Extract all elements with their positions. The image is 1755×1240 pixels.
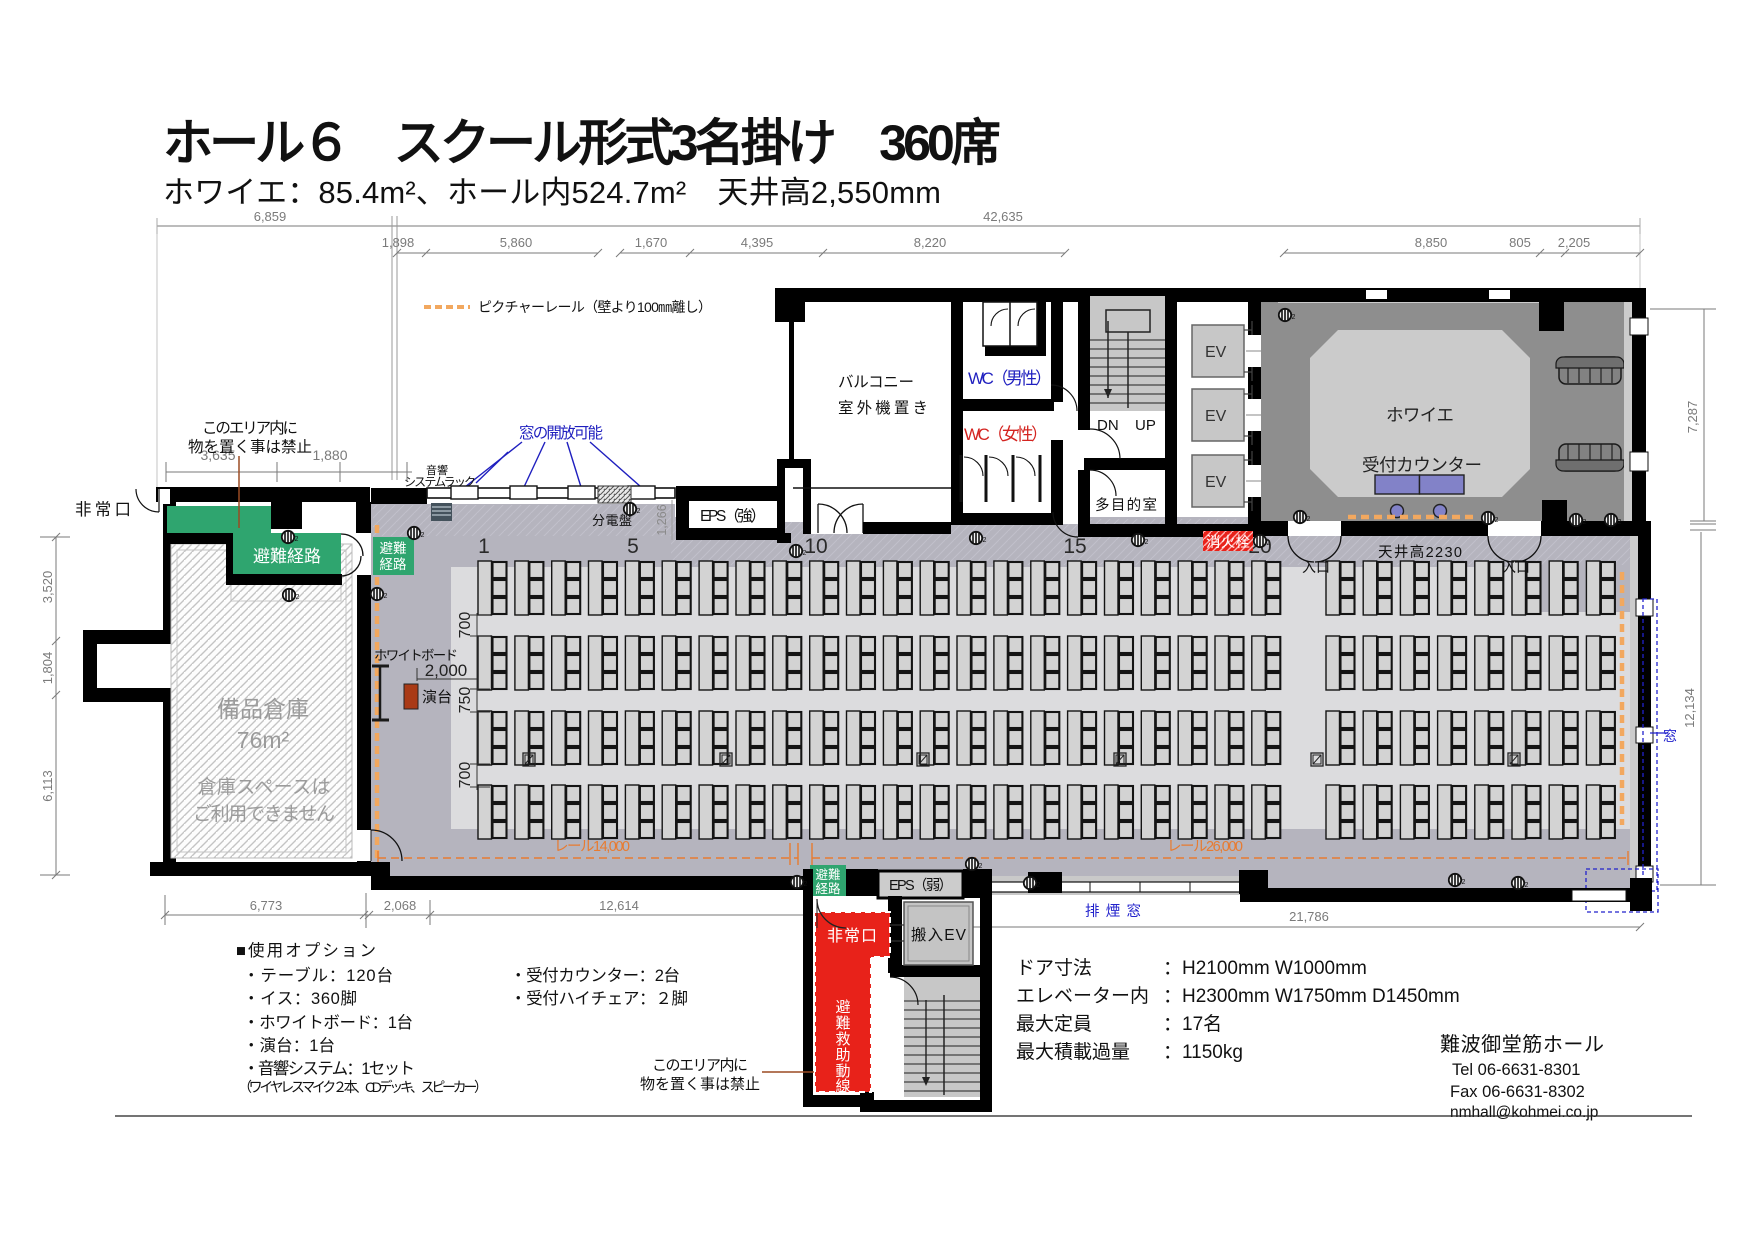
svg-text:このエリア内に: このエリア内に bbox=[652, 1057, 748, 1074]
svg-text:Tel 06-6631-8301: Tel 06-6631-8301 bbox=[1452, 1061, 1580, 1079]
svg-text:2,000: 2,000 bbox=[425, 661, 468, 680]
svg-text:7,287: 7,287 bbox=[1685, 401, 1700, 434]
svg-text:12,134: 12,134 bbox=[1682, 688, 1697, 728]
svg-text:助: 助 bbox=[835, 1047, 850, 1064]
svg-text:4,395: 4,395 bbox=[741, 235, 774, 250]
svg-text:避難: 避難 bbox=[816, 867, 841, 882]
svg-text:経路: 経路 bbox=[816, 881, 841, 896]
svg-text:ホール６ スクール形式3名掛け 360席: ホール６ スクール形式3名掛け 360席 bbox=[163, 115, 1001, 171]
svg-text:非常口: 非常口 bbox=[75, 500, 131, 519]
svg-text:備品倉庫: 備品倉庫 bbox=[217, 696, 309, 722]
svg-text:2,205: 2,205 bbox=[1558, 235, 1591, 250]
svg-text:76m²: 76m² bbox=[237, 727, 290, 753]
svg-text:入口: 入口 bbox=[1502, 559, 1530, 575]
svg-text:レール26,000: レール26,000 bbox=[1167, 839, 1243, 855]
svg-text:このエリア内に: このエリア内に bbox=[202, 419, 298, 437]
svg-text:・ホワイトボード：1台: ・ホワイトボード：1台 bbox=[243, 1013, 413, 1032]
svg-text:nmhall@kohmei.co.jp: nmhall@kohmei.co.jp bbox=[1450, 1104, 1598, 1121]
svg-text:WC（男性）: WC（男性） bbox=[968, 369, 1052, 388]
svg-text:805: 805 bbox=[1509, 235, 1531, 250]
svg-text:：17名: ：17名 bbox=[1163, 1013, 1222, 1035]
svg-text:ドア寸法: ドア寸法 bbox=[1016, 957, 1092, 979]
svg-text:・受付ハイチェア：２脚: ・受付ハイチェア：２脚 bbox=[510, 989, 688, 1008]
svg-text:入口: 入口 bbox=[1302, 559, 1330, 575]
svg-text:EPS（強）: EPS（強） bbox=[700, 507, 766, 525]
svg-text:線: 線 bbox=[835, 1078, 850, 1095]
svg-text:搬入EV: 搬入EV bbox=[911, 926, 967, 944]
svg-text:UP: UP bbox=[1135, 417, 1156, 434]
svg-text:EV: EV bbox=[1205, 408, 1227, 425]
svg-text:EV: EV bbox=[1205, 344, 1227, 361]
svg-text:EV: EV bbox=[1205, 474, 1227, 491]
svg-text:Fax 06-6631-8302: Fax 06-6631-8302 bbox=[1450, 1083, 1585, 1101]
svg-text:最大定員: 最大定員 bbox=[1016, 1013, 1092, 1035]
svg-text:演台: 演台 bbox=[422, 689, 452, 706]
svg-text:EPS（弱）: EPS（弱） bbox=[889, 877, 953, 894]
svg-text:窓: 窓 bbox=[1663, 728, 1677, 744]
svg-text:1,898: 1,898 bbox=[382, 235, 415, 250]
svg-text:：H2300mm W1750mm D1450mm: ：H2300mm W1750mm D1450mm bbox=[1163, 986, 1460, 1007]
svg-text:1,880: 1,880 bbox=[312, 447, 347, 463]
svg-text:・受付カウンター：2台: ・受付カウンター：2台 bbox=[510, 966, 680, 985]
svg-text:21,786: 21,786 bbox=[1289, 909, 1329, 924]
svg-text:5,860: 5,860 bbox=[500, 235, 533, 250]
svg-text:避難経路: 避難経路 bbox=[253, 547, 321, 566]
svg-text:12,614: 12,614 bbox=[599, 898, 639, 913]
svg-text:非常口: 非常口 bbox=[827, 927, 877, 945]
svg-text:ご利用できません: ご利用できません bbox=[193, 803, 335, 825]
svg-text:難波御堂筋ホール: 難波御堂筋ホール bbox=[1440, 1033, 1604, 1056]
svg-text:室外機置き: 室外機置き bbox=[838, 399, 928, 417]
svg-text:倉庫スペースは: 倉庫スペースは bbox=[198, 776, 331, 798]
svg-text:消火栓: 消火栓 bbox=[1206, 534, 1251, 551]
svg-text:窓の開放可能: 窓の開放可能 bbox=[519, 424, 603, 442]
svg-text:経路: 経路 bbox=[380, 557, 408, 572]
svg-text:42,635: 42,635 bbox=[983, 209, 1023, 224]
svg-text:物を置く事は禁止: 物を置く事は禁止 bbox=[188, 438, 312, 456]
svg-text:1,266: 1,266 bbox=[655, 504, 669, 535]
svg-text:5: 5 bbox=[627, 535, 639, 558]
svg-text:分電盤: 分電盤 bbox=[592, 513, 632, 528]
svg-text:受付カウンター: 受付カウンター bbox=[1362, 455, 1482, 475]
svg-text:：H2100mm W1000mm: ：H2100mm W1000mm bbox=[1163, 958, 1367, 979]
svg-text:排煙窓: 排煙窓 bbox=[1085, 902, 1141, 920]
svg-text:6,859: 6,859 bbox=[254, 209, 287, 224]
svg-text:■使用オプション: ■使用オプション bbox=[236, 941, 376, 960]
svg-text:6,113: 6,113 bbox=[40, 770, 55, 802]
svg-text:DN: DN bbox=[1097, 417, 1119, 434]
svg-text:・演台：1台: ・演台：1台 bbox=[243, 1036, 335, 1055]
svg-text:：1150kg: ：1150kg bbox=[1163, 1042, 1243, 1063]
svg-text:エレベーター内: エレベーター内 bbox=[1016, 985, 1149, 1007]
svg-text:700: 700 bbox=[457, 762, 474, 789]
svg-text:700: 700 bbox=[457, 612, 474, 639]
svg-text:レール14,000: レール14,000 bbox=[554, 839, 630, 855]
svg-text:6,773: 6,773 bbox=[250, 898, 283, 913]
svg-text:ホワイエ: ホワイエ bbox=[1386, 405, 1454, 425]
svg-text:多目的室: 多目的室 bbox=[1095, 497, 1157, 514]
svg-text:1,670: 1,670 bbox=[635, 235, 668, 250]
svg-text:ホワイエ：85.4m²、ホール内524.7m² 天井高2,5: ホワイエ：85.4m²、ホール内524.7m² 天井高2,550mm bbox=[163, 175, 941, 210]
svg-text:1,804: 1,804 bbox=[40, 652, 55, 685]
svg-text:天井高2230: 天井高2230 bbox=[1378, 544, 1462, 561]
svg-text:8,850: 8,850 bbox=[1415, 235, 1448, 250]
svg-text:救: 救 bbox=[835, 1031, 850, 1048]
svg-text:バルコニー: バルコニー bbox=[838, 374, 914, 391]
svg-text:750: 750 bbox=[457, 687, 474, 714]
svg-text:ピクチャーレール（壁より100㎜離し）: ピクチャーレール（壁より100㎜離し） bbox=[478, 299, 712, 315]
svg-text:・テーブル：120台: ・テーブル：120台 bbox=[243, 965, 393, 985]
svg-text:難: 難 bbox=[835, 1015, 850, 1032]
svg-text:2,068: 2,068 bbox=[384, 898, 417, 913]
svg-text:・音響システム：1セット: ・音響システム：1セット bbox=[243, 1059, 415, 1078]
svg-text:（ワイヤレスマイク２本、CDデッキ、スピーカー）: （ワイヤレスマイク２本、CDデッキ、スピーカー） bbox=[238, 1079, 488, 1095]
svg-text:・イス：360脚: ・イス：360脚 bbox=[243, 989, 357, 1008]
svg-text:物を置く事は禁止: 物を置く事は禁止 bbox=[640, 1076, 760, 1093]
svg-text:15: 15 bbox=[1063, 535, 1086, 558]
svg-text:3,520: 3,520 bbox=[40, 571, 55, 604]
svg-text:1: 1 bbox=[478, 535, 490, 558]
svg-text:避: 避 bbox=[835, 999, 850, 1016]
svg-text:8,220: 8,220 bbox=[914, 235, 947, 250]
svg-text:最大積載過量: 最大積載過量 bbox=[1016, 1041, 1130, 1063]
svg-text:10: 10 bbox=[804, 535, 827, 558]
svg-text:WC（女性）: WC（女性） bbox=[964, 425, 1048, 444]
svg-text:避難: 避難 bbox=[380, 541, 407, 556]
